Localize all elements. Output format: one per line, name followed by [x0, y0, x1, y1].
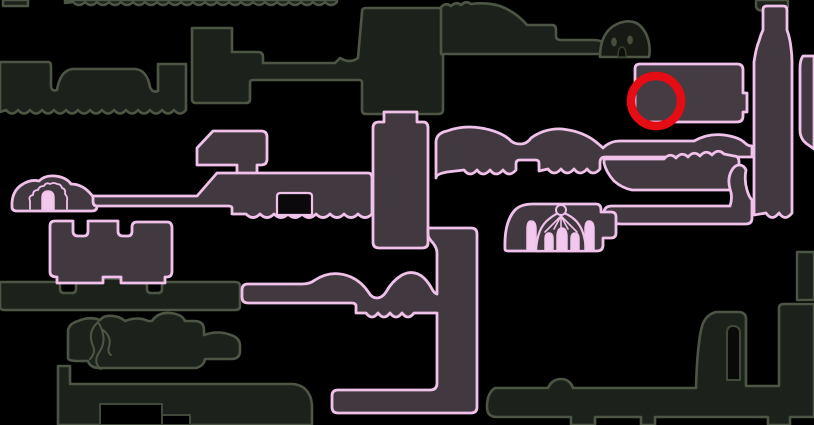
room-bottom-right-corridor	[487, 304, 814, 425]
mound-mouth-icon	[618, 47, 626, 57]
mound-eye-left-icon	[611, 38, 617, 47]
room-notched-lower-left	[50, 221, 172, 283]
room-left-band	[0, 62, 186, 114]
boot-tower-notch	[727, 326, 740, 380]
mound-eye-right-icon	[627, 36, 633, 45]
temple-column-left-icon	[527, 221, 536, 251]
room-top-left-block	[3, 0, 28, 6]
shaft-right-bottle	[754, 6, 792, 218]
room-vine	[68, 313, 240, 368]
room-upper-mid-complex	[192, 8, 443, 114]
room-right-edge-strip	[800, 56, 814, 149]
temple-column-right-icon	[585, 221, 594, 251]
room-wide-left	[93, 173, 372, 218]
wide-room-floor-step	[277, 193, 312, 215]
temple-arch-right-icon	[571, 233, 579, 251]
temple-arch-left-icon	[545, 233, 553, 251]
room-right-edge-small	[797, 252, 814, 300]
temple-arch-center-icon	[557, 228, 567, 251]
map-canvas[interactable]	[0, 0, 814, 425]
room-top-lump-bar	[441, 2, 604, 54]
shaft-upper	[373, 112, 428, 248]
game-map-view[interactable]	[0, 0, 814, 425]
bottom-left-corridor-cutout	[100, 404, 162, 425]
room-top-strip	[65, 0, 337, 5]
mound-arch-door-icon	[42, 191, 54, 210]
temple-cap-icon	[556, 205, 566, 215]
bottom-left-corridor-step	[162, 415, 190, 425]
